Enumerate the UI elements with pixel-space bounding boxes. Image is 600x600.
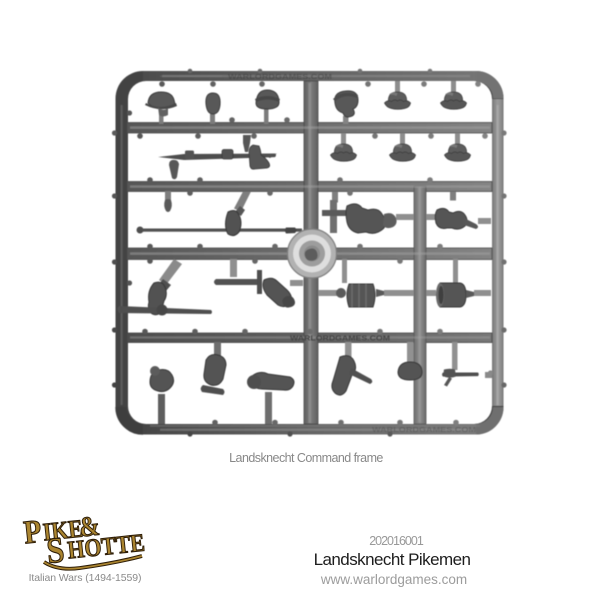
svg-text:WARLORDGAMES.COM: WARLORDGAMES.COM xyxy=(290,334,390,343)
svg-text:P: P xyxy=(22,512,43,551)
svg-text:WARLORDGAMES.COM: WARLORDGAMES.COM xyxy=(372,425,476,434)
svg-text:WARLORDGAMES.COM: WARLORDGAMES.COM xyxy=(228,72,332,81)
